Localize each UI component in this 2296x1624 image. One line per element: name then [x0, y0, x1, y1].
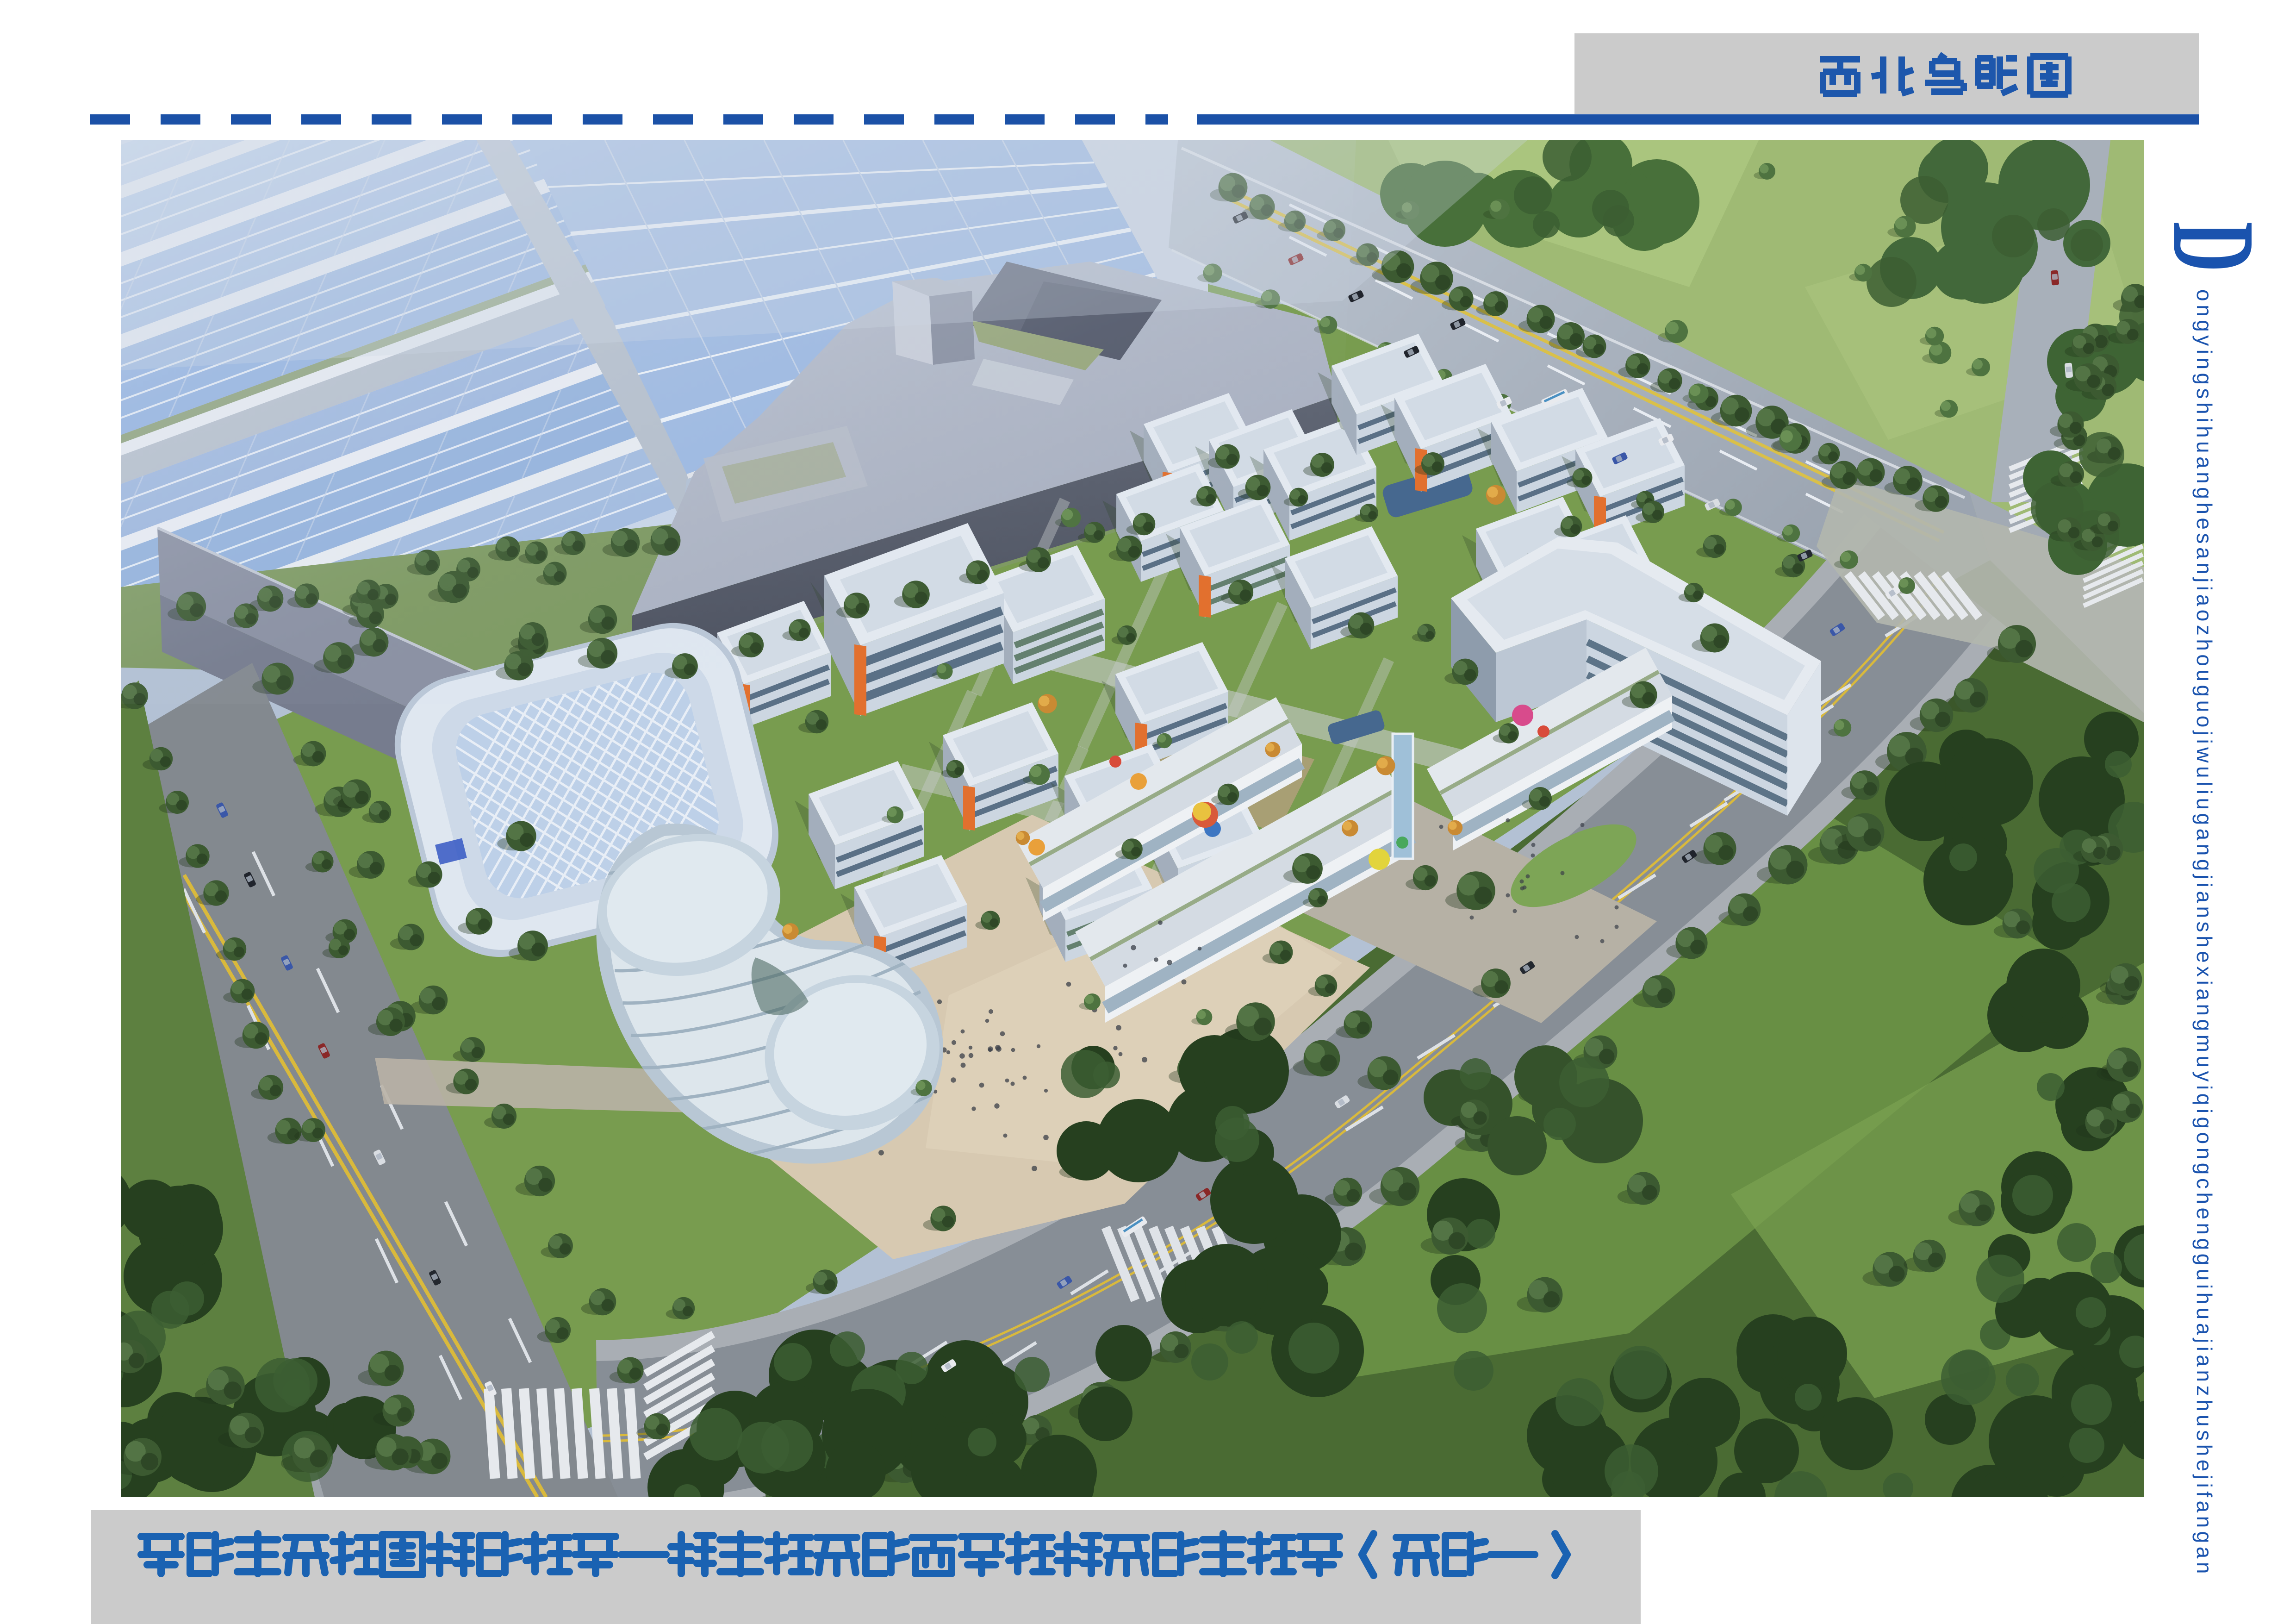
svg-text:D: D	[2148, 222, 2279, 272]
svg-text:ongyingshihuanghesanjiaozhougu: ongyingshihuanghesanjiaozhouguojiwuliuga…	[2192, 289, 2216, 1577]
